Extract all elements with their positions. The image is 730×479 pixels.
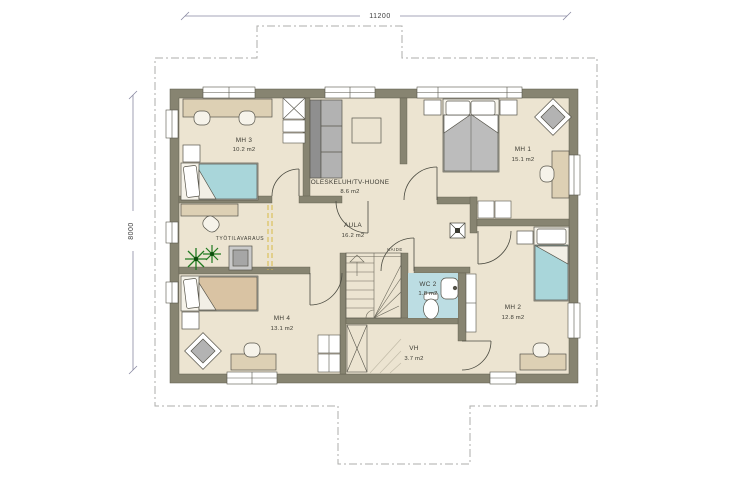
window-top-olesk xyxy=(325,87,375,98)
room-area-mh1: 15.1 m2 xyxy=(512,157,535,163)
bed xyxy=(181,163,258,200)
window-right-mh2 xyxy=(568,303,580,338)
room-label-olesk: OLESKELUH/TV-HUONE xyxy=(311,179,390,186)
room-label-vh: VH xyxy=(409,345,419,352)
room-area-vh: 3.7 m2 xyxy=(404,356,423,362)
room-label-wc2: WC 2 xyxy=(419,281,436,288)
window-left-mh4 xyxy=(166,282,178,303)
chair xyxy=(244,343,260,357)
window-top-mh3 xyxy=(203,87,255,98)
sink-icon xyxy=(441,278,458,299)
floor-plan-drawing: 11200 8000 xyxy=(0,0,730,479)
dimension-width-label: 11200 xyxy=(369,13,390,20)
window-right-mh1 xyxy=(568,155,580,195)
nightstand xyxy=(182,312,199,329)
nightstand xyxy=(424,100,441,115)
desk xyxy=(181,204,238,216)
stair-railing-label: KAIDE xyxy=(387,247,402,252)
room-area-aula: 16.2 m2 xyxy=(342,233,365,239)
wardrobe-mh2 xyxy=(466,274,476,332)
room-area-mh3: 10.2 m2 xyxy=(233,147,256,153)
double-bed xyxy=(443,99,499,172)
room-label-mh4: MH 4 xyxy=(274,315,291,322)
room-label-tyo: TYÖTILAVARAUS xyxy=(216,235,265,242)
room-area-olesk: 8.6 m2 xyxy=(340,189,359,195)
room-area-mh2: 12.8 m2 xyxy=(502,315,525,321)
window-left-tyo xyxy=(166,222,178,243)
chair xyxy=(540,166,554,182)
chair xyxy=(194,111,210,125)
room-area-mh4: 13.1 m2 xyxy=(271,326,294,332)
room-area-wc2: 1.8 m2 xyxy=(418,291,437,297)
closet-mh3 xyxy=(283,98,305,143)
pillow xyxy=(537,229,566,244)
room-label-mh3: MH 3 xyxy=(236,137,253,144)
pillow xyxy=(446,101,470,115)
closet-x-vh xyxy=(347,325,367,372)
floor-plan-canvas: 11200 8000 xyxy=(0,0,730,479)
nightstand xyxy=(183,145,200,162)
window-bottom-mh2 xyxy=(490,372,516,384)
nightstand xyxy=(517,231,533,244)
plant xyxy=(185,248,207,270)
room-label-mh1: MH 1 xyxy=(515,146,532,153)
nightstand xyxy=(500,100,517,115)
armchair xyxy=(229,246,252,270)
chair xyxy=(239,111,255,125)
window-left-mh3 xyxy=(166,110,178,138)
bed xyxy=(534,227,569,301)
desk xyxy=(552,151,569,198)
room-label-mh2: MH 2 xyxy=(505,304,522,311)
pillow xyxy=(471,101,495,115)
chair xyxy=(533,343,549,357)
window-bottom-mh4 xyxy=(227,372,277,384)
dimension-height-label: 8000 xyxy=(128,222,135,240)
room-label-aula: AULA xyxy=(344,222,362,229)
chimney-symbol xyxy=(450,223,465,238)
window-top-mh1 xyxy=(417,87,522,98)
bed xyxy=(181,276,258,311)
dim-left-text: 8000 xyxy=(124,211,136,251)
sofa xyxy=(310,100,342,178)
